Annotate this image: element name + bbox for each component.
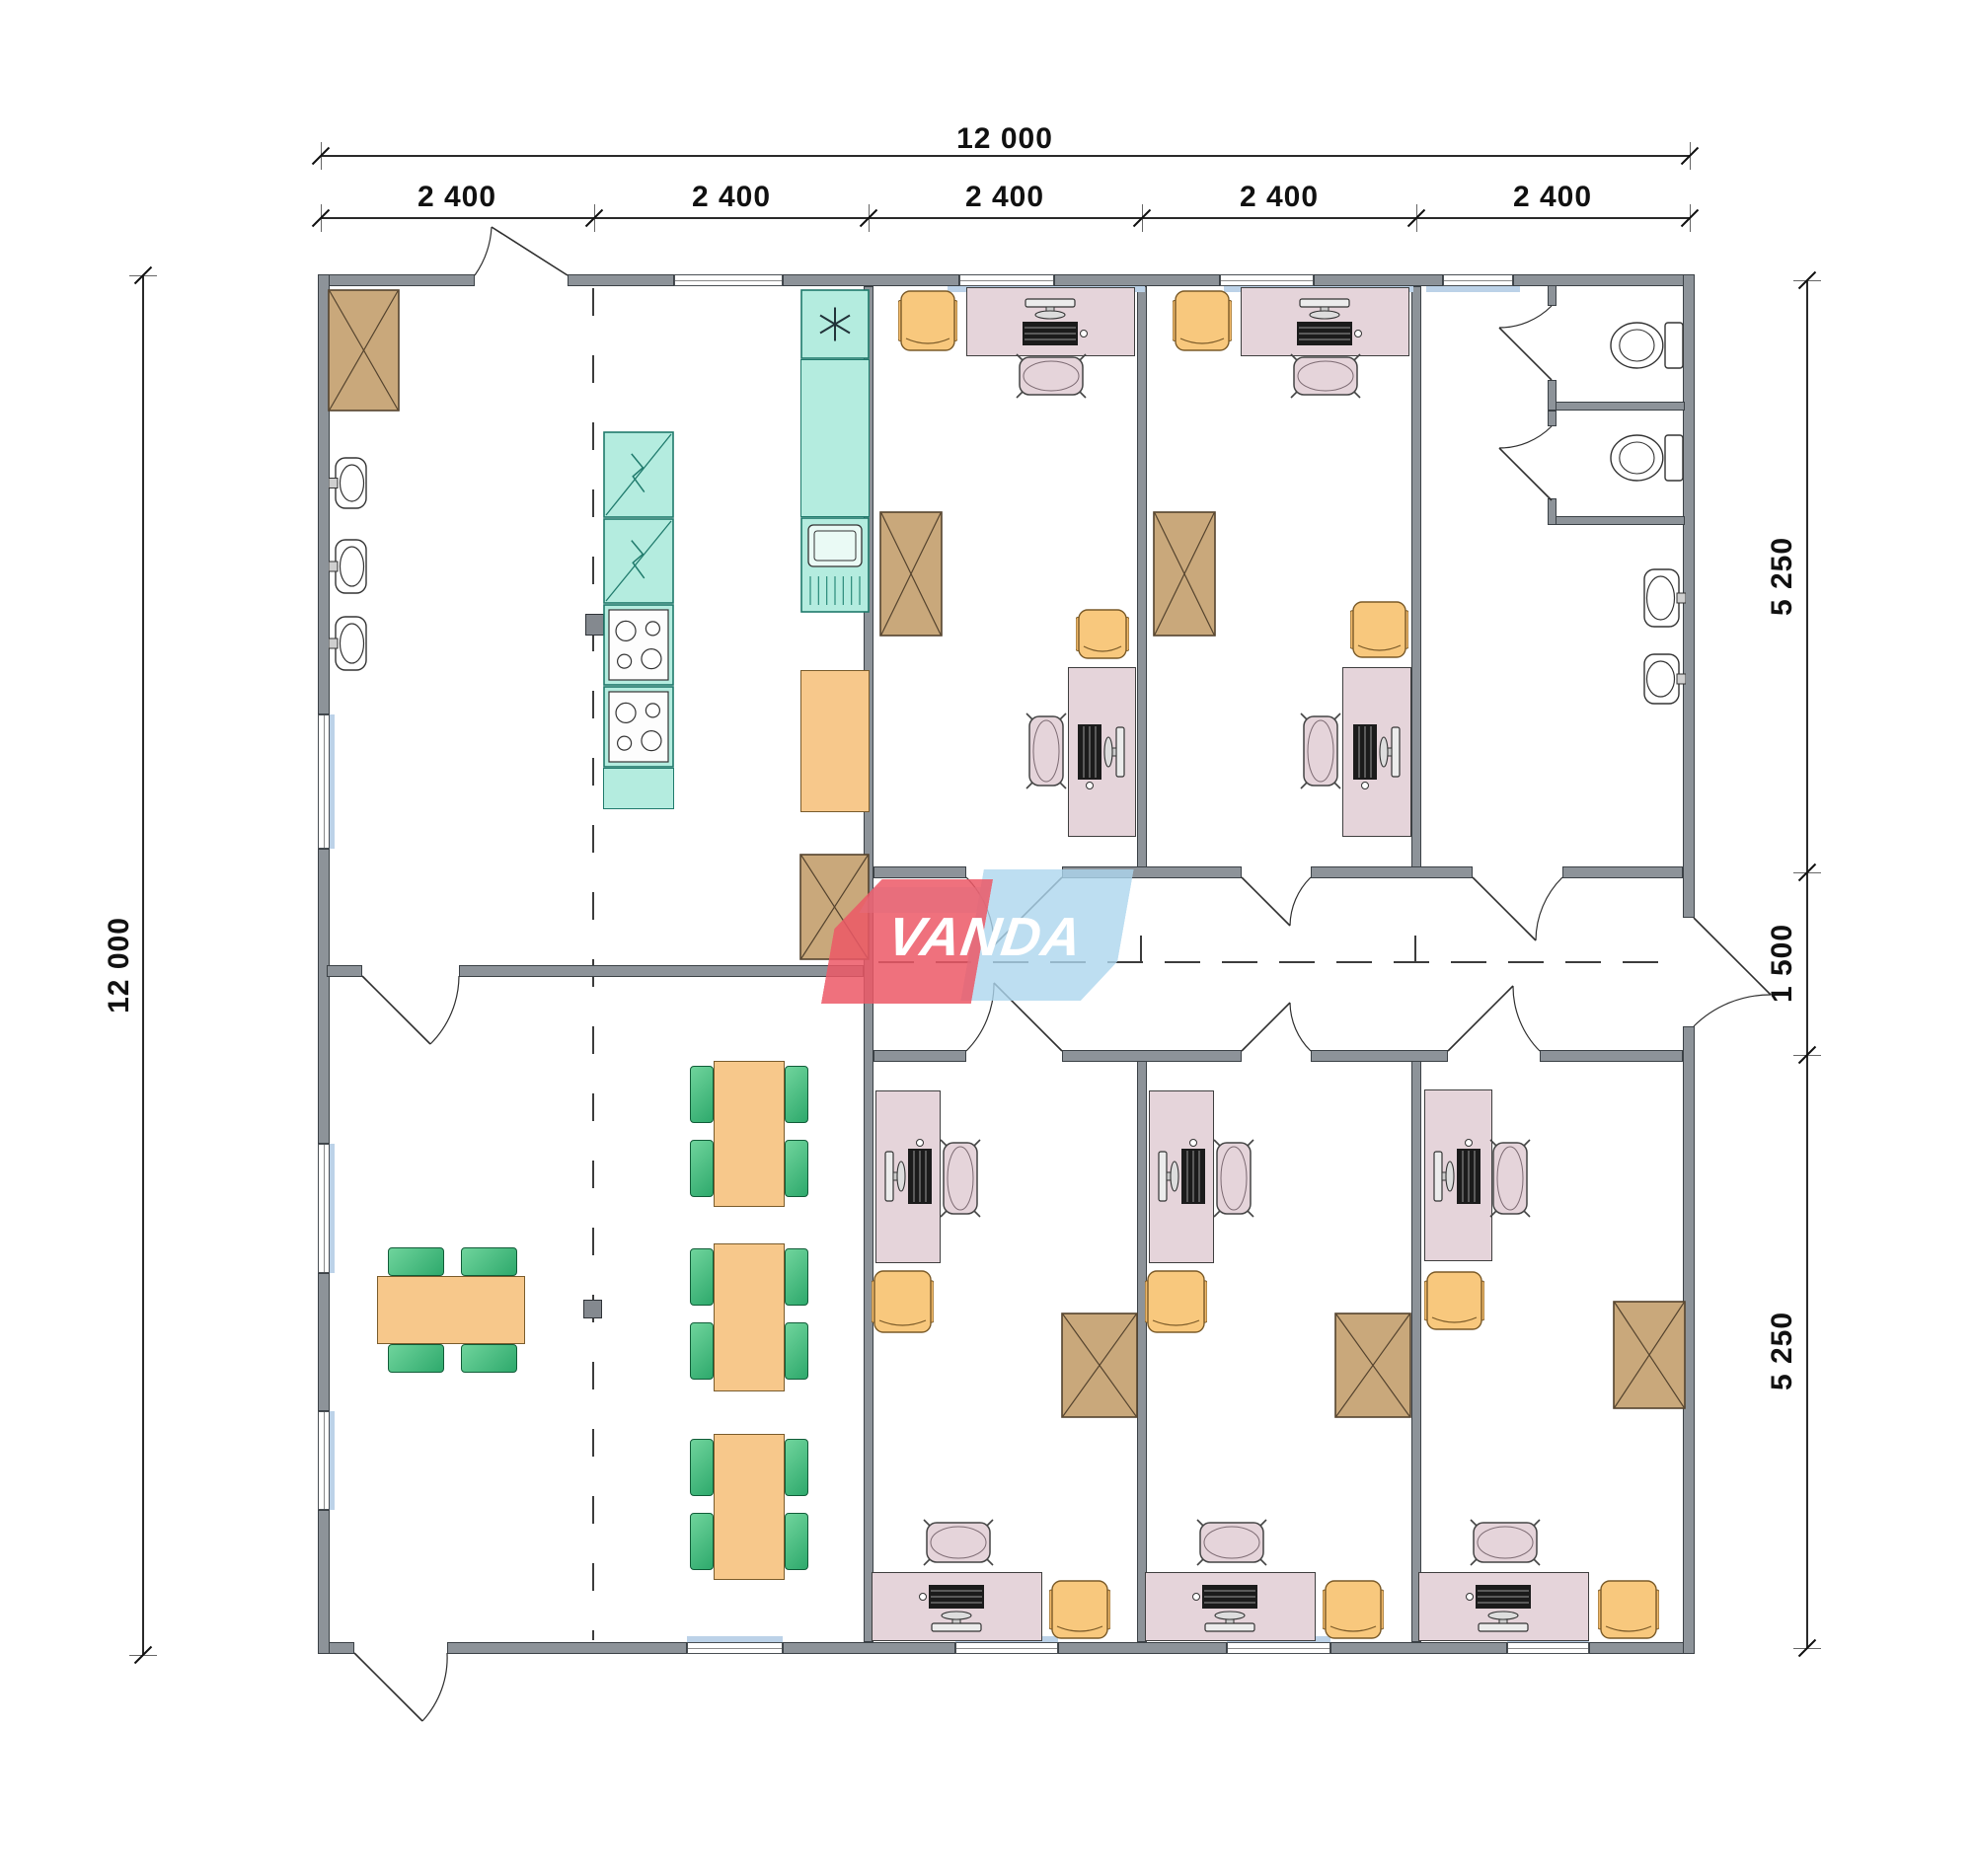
dimension-line-modules — [321, 217, 1690, 219]
dim-label-module: 2 400 — [692, 181, 771, 214]
dim-label-right-segment: 5 250 — [1766, 1312, 1799, 1390]
floor-plan: VANDA 12 000 2 400 2 400 2 400 2 400 2 4… — [0, 0, 1974, 1876]
dim-label-total-width: 12 000 — [956, 122, 1053, 156]
dim-label-module: 2 400 — [1240, 181, 1319, 214]
dim-label-right-segment: 5 250 — [1766, 537, 1799, 616]
dimension-line-right-segments — [1806, 280, 1808, 1648]
dim-label-total-height: 12 000 — [103, 917, 136, 1013]
dim-label-module: 2 400 — [418, 181, 496, 214]
dimension-line-total-height — [142, 275, 144, 1655]
dimensions-layer: 12 000 2 400 2 400 2 400 2 400 2 400 12 … — [0, 0, 1974, 1876]
dim-label-module: 2 400 — [965, 181, 1044, 214]
dim-label-right-segment: 1 500 — [1766, 924, 1799, 1003]
dim-label-module: 2 400 — [1513, 181, 1592, 214]
